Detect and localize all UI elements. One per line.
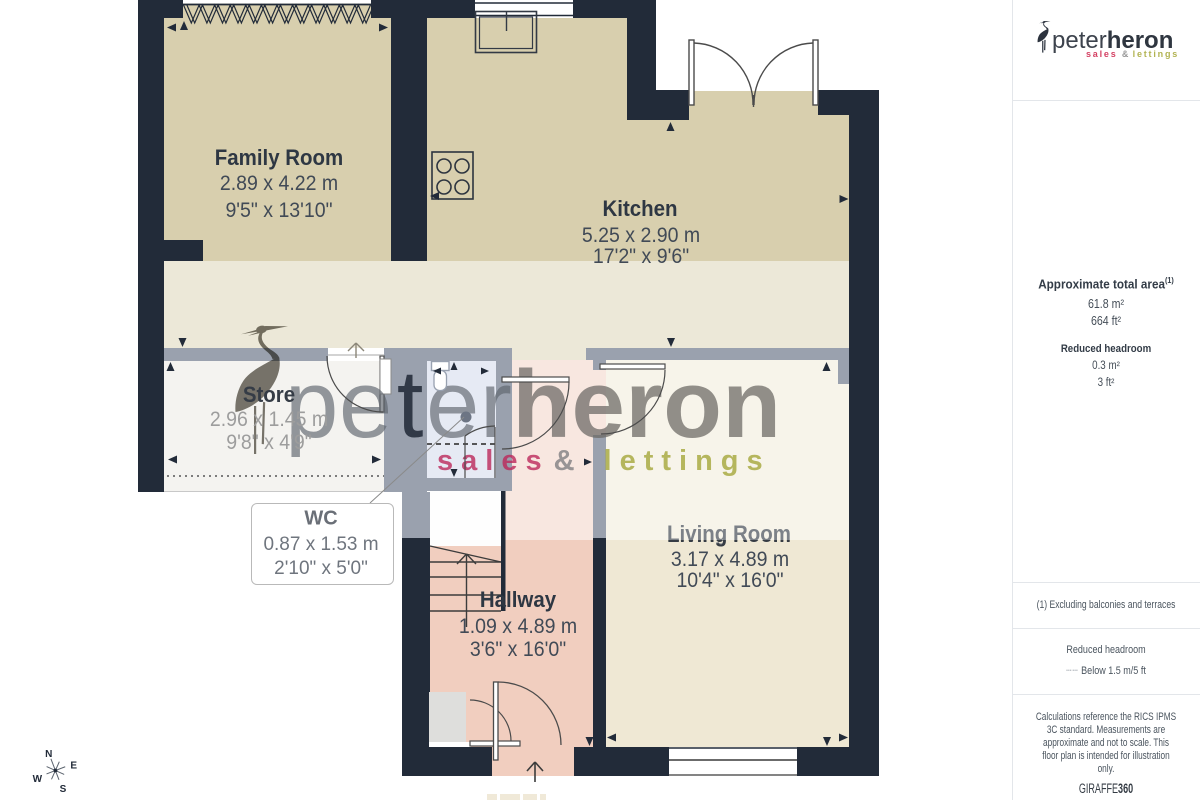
svg-text:S: S: [60, 784, 67, 795]
svg-text:W: W: [33, 774, 43, 785]
svg-text:E: E: [70, 761, 77, 772]
svg-text:N: N: [45, 749, 52, 760]
